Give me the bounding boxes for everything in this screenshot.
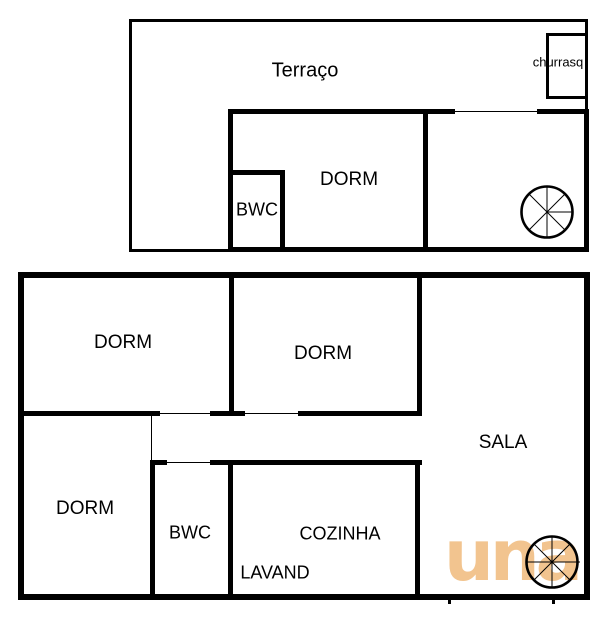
dorm-top-left-label: DORM bbox=[94, 332, 152, 354]
door-opening-upper-stair-room bbox=[455, 111, 537, 112]
upper-spiral-staircase-icon bbox=[519, 184, 575, 240]
terrace-label: Terraço bbox=[272, 60, 339, 83]
wall-hall-bottom-b bbox=[210, 460, 422, 465]
wall-dorm1-dorm2-divider bbox=[229, 272, 234, 415]
wall-cozinha-sala-divider bbox=[415, 462, 420, 600]
wall-lower-left bbox=[18, 272, 24, 600]
wall-upper-bwc-top bbox=[228, 170, 285, 175]
upper-dorm-label: DORM bbox=[320, 169, 378, 191]
door-opening-dorm2 bbox=[245, 413, 298, 414]
dorm-top-middle-label: DORM bbox=[294, 343, 352, 365]
wall-terrace-top bbox=[129, 19, 588, 22]
wall-lower-top bbox=[18, 272, 590, 278]
churrasq-label: churrasq bbox=[533, 55, 584, 70]
wall-churrasq-bottom bbox=[546, 96, 588, 99]
wall-upper-block-right bbox=[584, 109, 589, 252]
door-opening-bwc bbox=[167, 462, 210, 463]
dorm-bottom-left-label: DORM bbox=[56, 498, 114, 520]
wall-lower-right bbox=[584, 272, 590, 600]
wall-bwc-cozinha-divider bbox=[228, 462, 233, 600]
upper-bwc-label: BWC bbox=[236, 200, 278, 221]
door-opening-dorm3 bbox=[151, 416, 152, 460]
wall-hall-top-a bbox=[18, 411, 160, 416]
lower-spiral-staircase-icon bbox=[524, 534, 580, 590]
wall-upper-bwc-right bbox=[280, 170, 285, 252]
wall-upper-block-left bbox=[228, 109, 233, 252]
door-opening-dorm1 bbox=[160, 413, 210, 414]
wall-dorm3-bwc-divider bbox=[150, 460, 155, 600]
lower-bwc-label: BWC bbox=[169, 523, 211, 544]
cozinha-label: COZINHA bbox=[300, 524, 381, 545]
wall-dorm2-sala-divider bbox=[417, 272, 422, 415]
wall-upper-block-top bbox=[228, 109, 455, 114]
lavand-label: LAVAND bbox=[240, 563, 309, 584]
sala-label: SALA bbox=[479, 432, 528, 454]
wall-churrasq-top bbox=[546, 33, 588, 36]
wall-tick-left bbox=[448, 600, 451, 604]
wall-hall-top-c bbox=[298, 411, 422, 416]
wall-upper-dorm-stair-divider bbox=[423, 109, 428, 252]
wall-tick-right bbox=[552, 600, 555, 604]
wall-hall-top-b bbox=[210, 411, 245, 416]
wall-terrace-left bbox=[129, 19, 132, 252]
floorplan-canvas: Terraço churrasq DORM BWC DORM DORM SALA… bbox=[0, 0, 613, 618]
wall-upper-block-top-right bbox=[537, 109, 589, 114]
wall-terrace-bottom bbox=[129, 249, 228, 252]
